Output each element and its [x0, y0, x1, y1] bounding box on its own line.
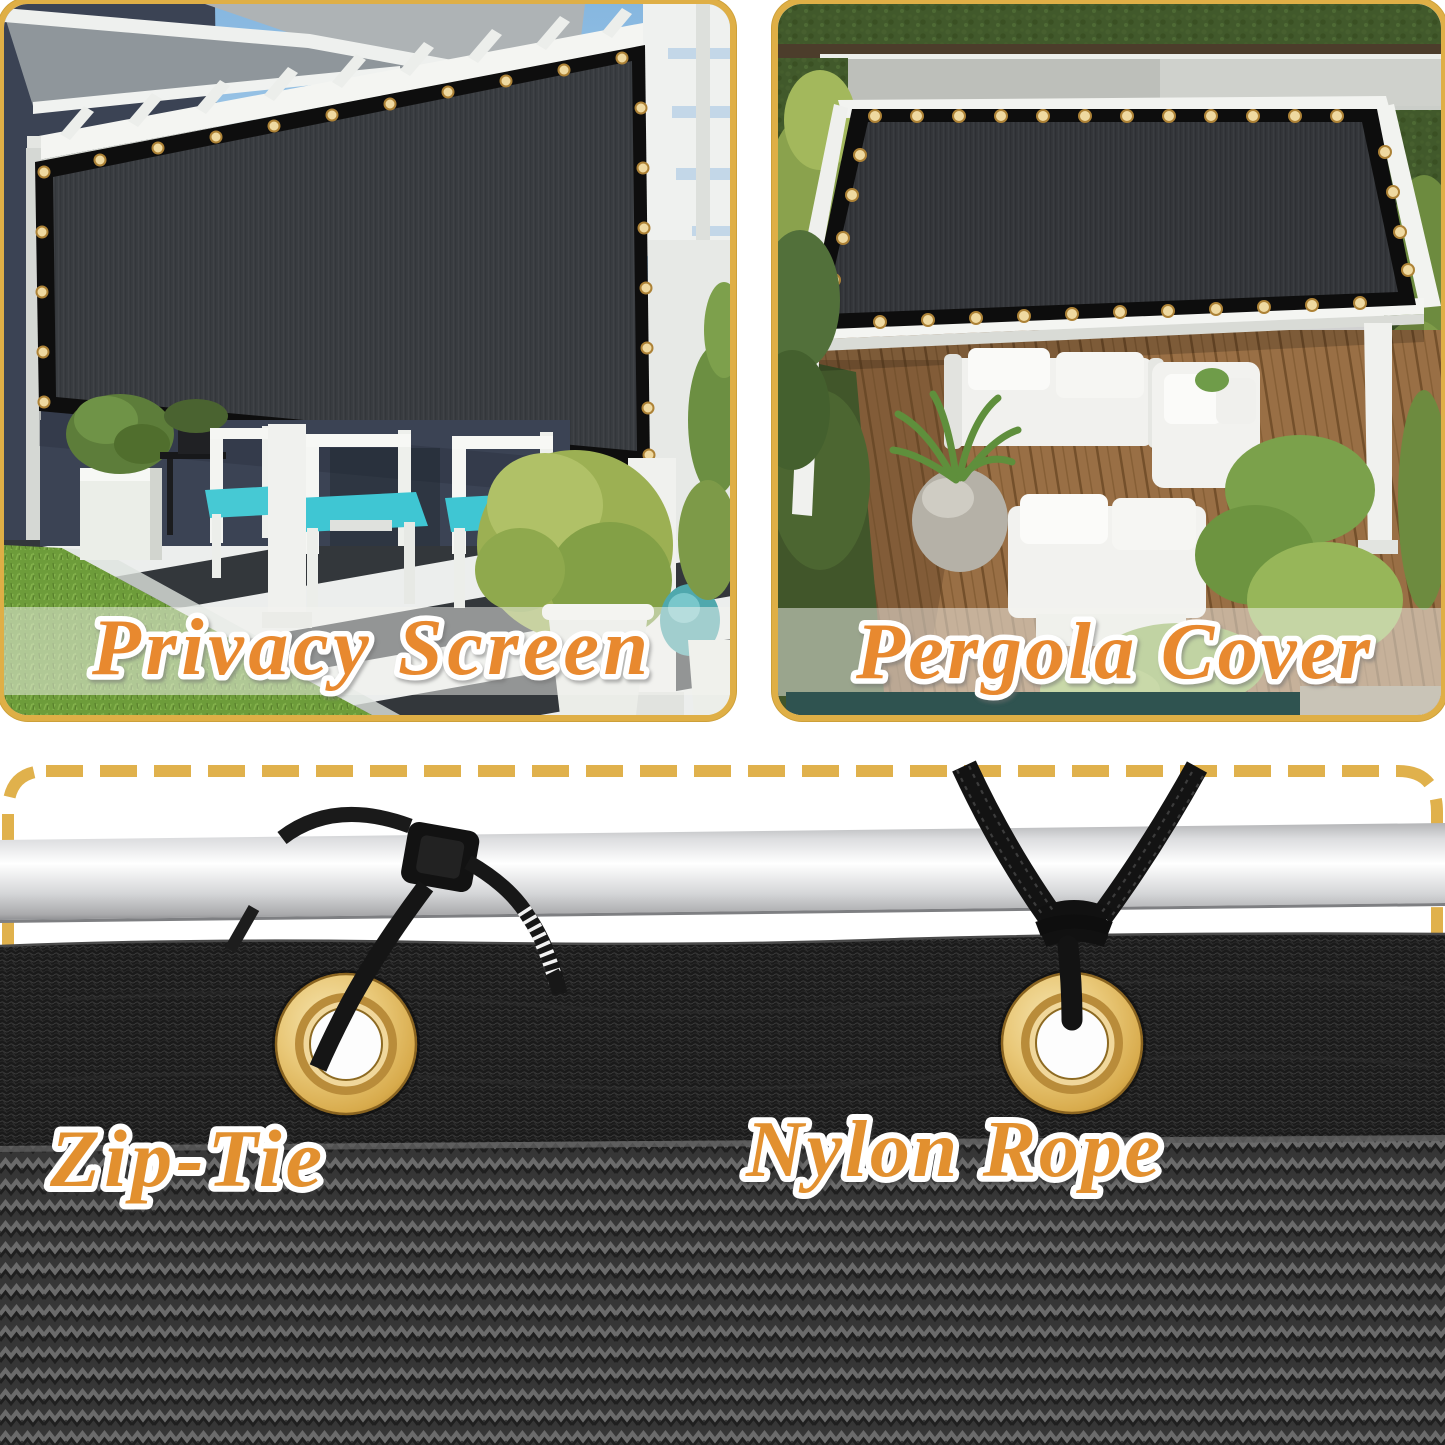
svg-text:Zip-Tie: Zip-Tie: [49, 1113, 322, 1204]
svg-text:Pergola Cover: Pergola Cover: [855, 608, 1371, 696]
svg-text:Nylon Rope: Nylon Rope: [745, 1106, 1160, 1194]
